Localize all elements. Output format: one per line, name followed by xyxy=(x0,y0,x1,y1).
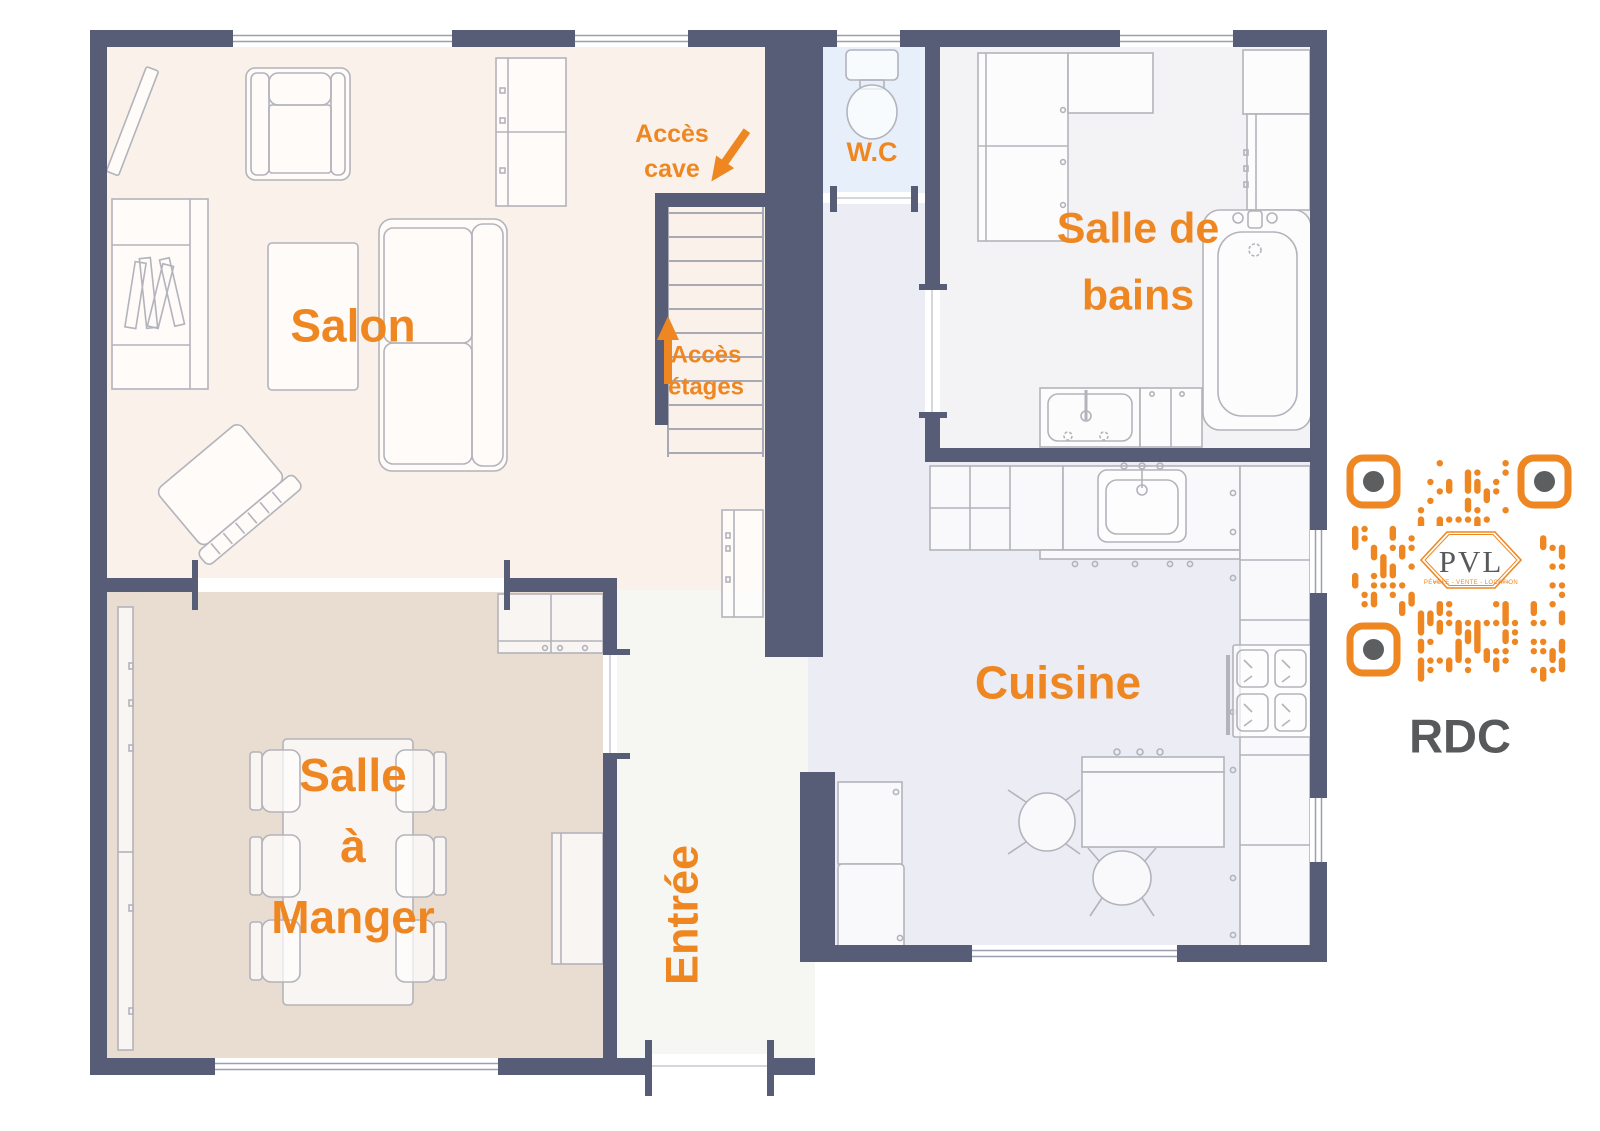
wc-label: W.C xyxy=(847,132,898,173)
salon-label: Salon xyxy=(290,292,415,361)
entree-label: Entrée xyxy=(648,845,716,985)
bathroom-vanity xyxy=(1040,388,1202,447)
qr-finder-bottom-left xyxy=(1350,626,1397,673)
kitchen-sink xyxy=(1098,463,1186,542)
window-wc-top xyxy=(837,30,900,47)
toilet-icon xyxy=(846,50,898,139)
dining-room-label: Salle à Manger xyxy=(271,740,435,952)
dining-cabinet xyxy=(498,594,603,653)
qr-logo-text: PVL xyxy=(1439,544,1504,579)
window-bath-top xyxy=(1120,30,1233,47)
window-kitchen-right-2 xyxy=(1310,798,1327,862)
floorplan-drawing: PVL PÉVÈLE - VENTE - LOCATION xyxy=(0,0,1600,1131)
qr-logo-tagline: PÉVÈLE - VENTE - LOCATION xyxy=(1424,579,1518,586)
kitchen-island xyxy=(1082,749,1224,847)
dining-wall-shelf xyxy=(118,607,133,1050)
bathroom-label: Salle de bains xyxy=(1057,195,1220,328)
wall-shelf-top xyxy=(496,58,566,206)
bookshelf xyxy=(112,199,208,389)
qr-finder-top-right xyxy=(1521,458,1568,505)
armchair-top xyxy=(246,68,350,180)
qr-finder-top-left xyxy=(1350,458,1397,505)
qr-code: PVL PÉVÈLE - VENTE - LOCATION xyxy=(1350,458,1568,682)
window-kitchen-bottom xyxy=(972,945,1177,962)
floor-level-label: RDC xyxy=(1409,709,1511,764)
bathroom-cabinet-top xyxy=(1068,53,1153,113)
qr-logo: PVL PÉVÈLE - VENTE - LOCATION xyxy=(1416,526,1526,594)
acces-cave-label: Accès cave xyxy=(635,117,709,187)
stove-icon xyxy=(1228,645,1312,737)
kitchen-appliance xyxy=(838,782,904,952)
sideboard xyxy=(552,833,603,964)
bathroom-wardrobe xyxy=(978,53,1068,241)
window-salon-top xyxy=(233,30,452,47)
bathroom-tall-cabinet xyxy=(1243,50,1310,210)
window-kitchen-right-1 xyxy=(1310,530,1327,593)
floorplan-rdc: PVL PÉVÈLE - VENTE - LOCATION Salon Sall… xyxy=(0,0,1600,1131)
cuisine-label: Cuisine xyxy=(975,649,1141,718)
acces-etages-label: Accès étages xyxy=(668,340,744,405)
window-stair-top xyxy=(575,30,688,47)
hall-cabinet xyxy=(722,510,763,617)
window-dining-bottom xyxy=(215,1058,498,1075)
